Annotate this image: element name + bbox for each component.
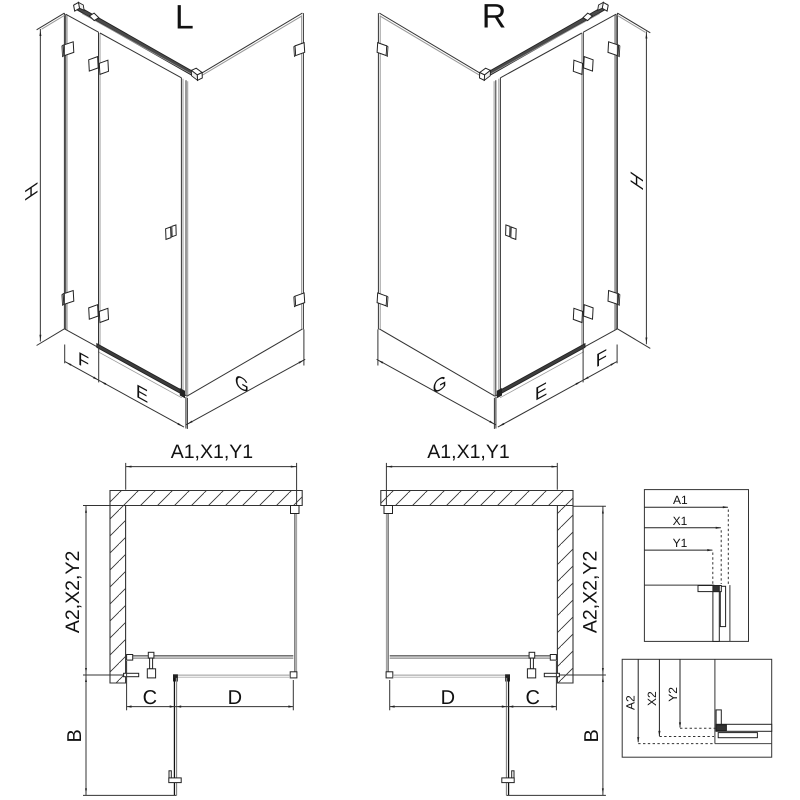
svg-text:Y2: Y2 — [666, 687, 680, 702]
svg-text:C: C — [525, 687, 539, 709]
svg-text:Y1: Y1 — [673, 536, 688, 550]
svg-text:A1,X1,Y1: A1,X1,Y1 — [171, 441, 253, 463]
svg-text:R: R — [482, 0, 507, 36]
svg-text:X2: X2 — [645, 691, 659, 706]
svg-text:D: D — [441, 687, 455, 709]
svg-text:A1,X1,Y1: A1,X1,Y1 — [427, 441, 509, 463]
svg-text:A2: A2 — [624, 695, 638, 710]
svg-text:D: D — [228, 687, 242, 709]
svg-text:C: C — [143, 687, 157, 709]
svg-text:X1: X1 — [673, 514, 688, 528]
svg-text:B: B — [64, 729, 86, 742]
svg-text:A1: A1 — [673, 493, 688, 507]
svg-text:A2,X2,Y2: A2,X2,Y2 — [579, 551, 601, 633]
svg-text:B: B — [581, 729, 603, 742]
svg-text:A2,X2,Y2: A2,X2,Y2 — [62, 551, 84, 633]
svg-text:L: L — [175, 0, 194, 37]
